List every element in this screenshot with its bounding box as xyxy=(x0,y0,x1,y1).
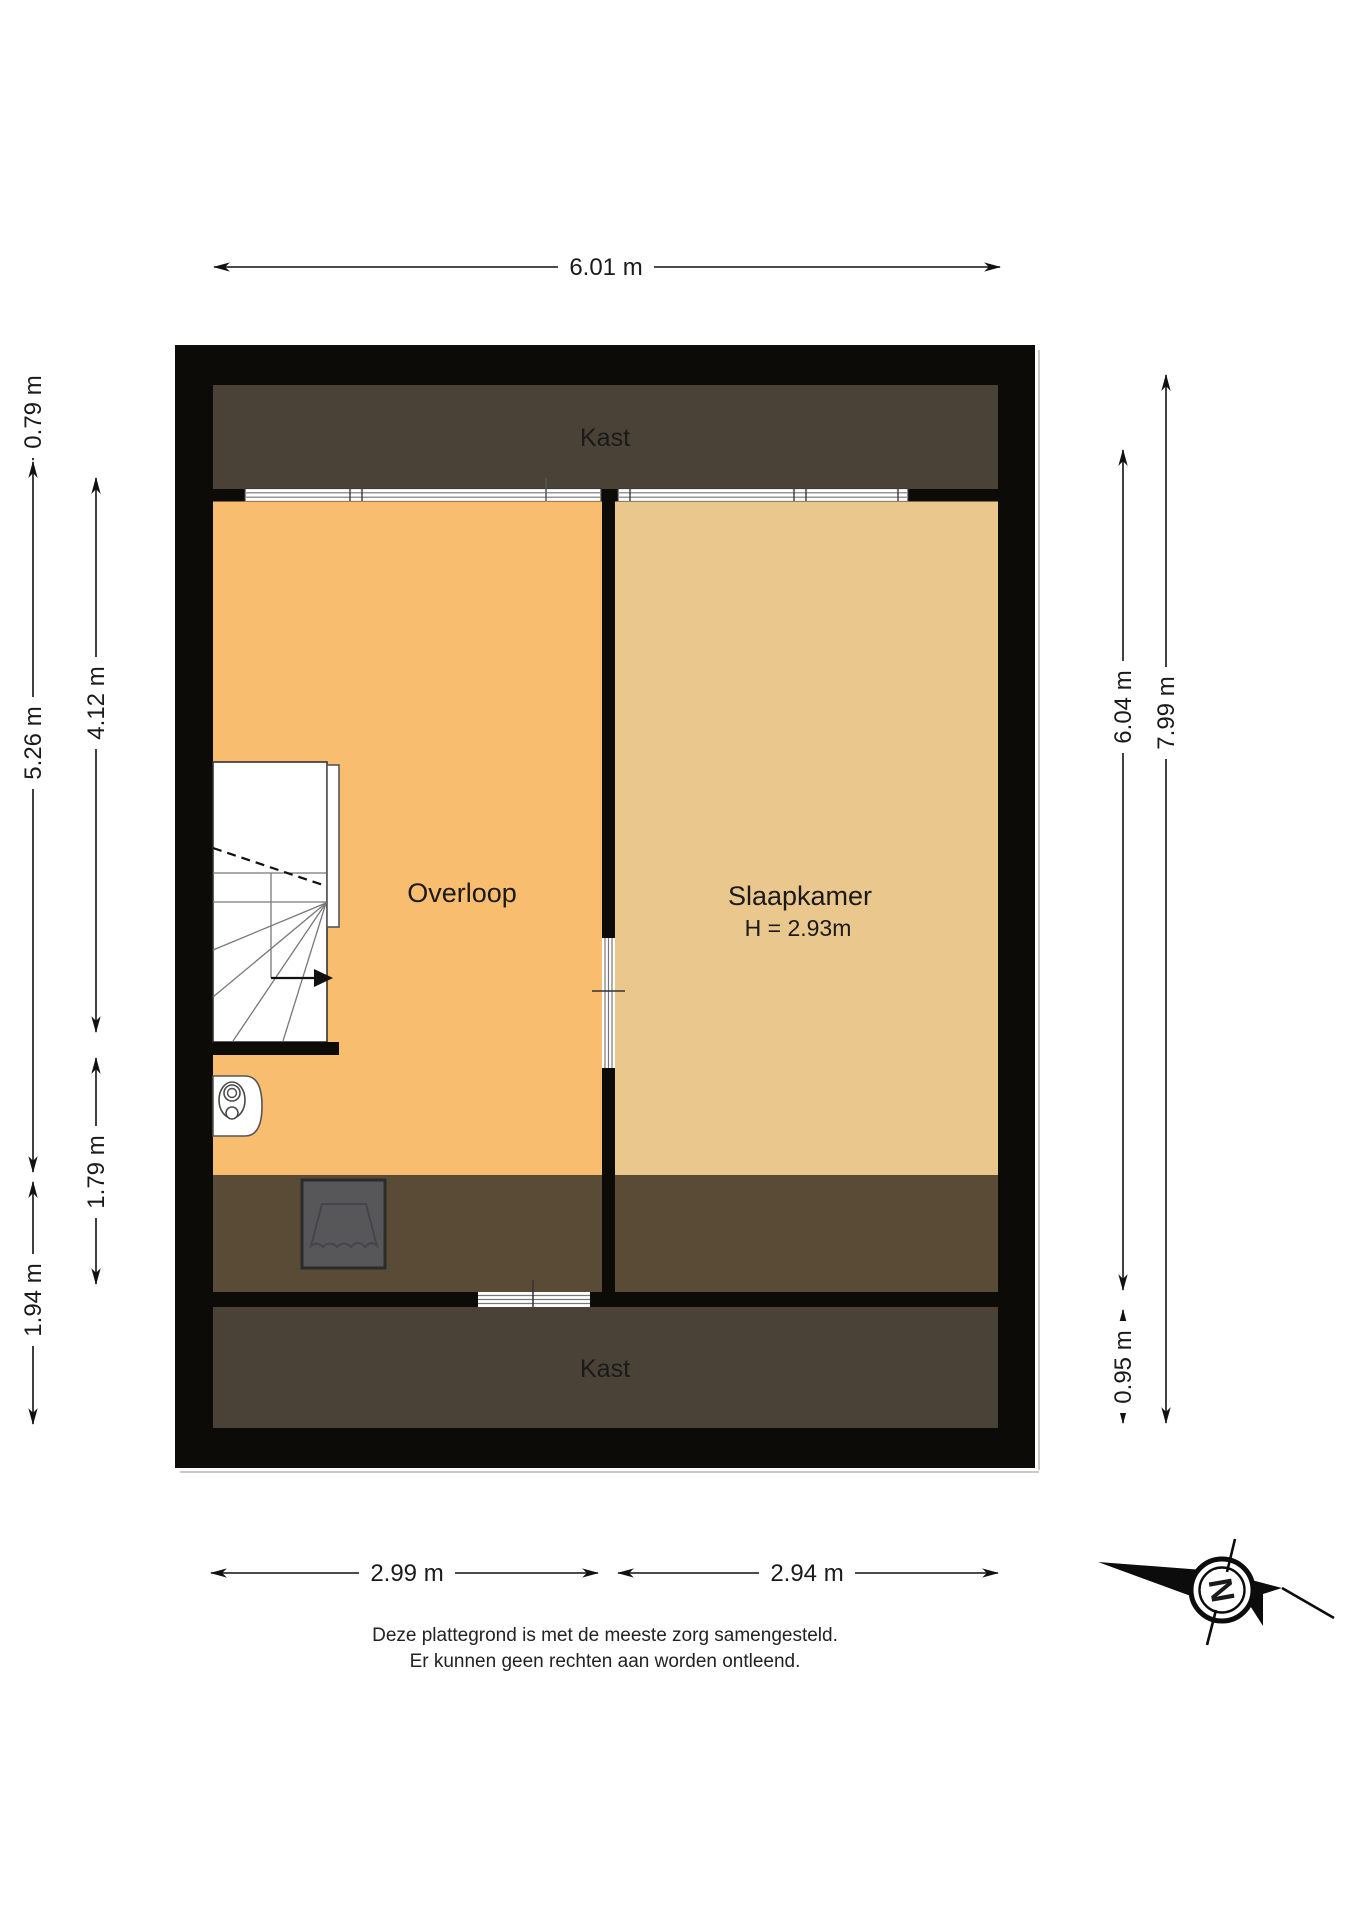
svg-text:2.94 m: 2.94 m xyxy=(770,1560,843,1587)
disclaimer: Deze plattegrond is met de meeste zorg s… xyxy=(372,1625,838,1672)
north-arrow: N xyxy=(1098,1539,1334,1645)
boiler-icon xyxy=(213,1076,262,1136)
room-slaapkamer xyxy=(615,502,998,1176)
svg-text:2.99 m: 2.99 m xyxy=(370,1560,443,1587)
svg-text:1.94 m: 1.94 m xyxy=(20,1263,47,1336)
floorplan-drawing: Kast Overloop Slaapkamer H = 2.93m Kast … xyxy=(0,0,1358,1920)
dim-right-inner-bottom: 0.95 m xyxy=(1107,1310,1139,1423)
svg-text:7.99 m: 7.99 m xyxy=(1153,676,1180,749)
attic-strip-left xyxy=(213,1175,602,1292)
window-left xyxy=(245,489,601,502)
dim-left-inner-bottom: 1.79 m xyxy=(80,1058,112,1284)
dim-bottom-left: 2.99 m xyxy=(211,1555,598,1591)
label-slaapkamer-height: H = 2.93m xyxy=(745,915,852,941)
svg-text:5.26 m: 5.26 m xyxy=(20,706,47,779)
svg-text:0.95 m: 0.95 m xyxy=(1110,1330,1137,1403)
floorplan-page: Kast Overloop Slaapkamer H = 2.93m Kast … xyxy=(0,0,1358,1920)
label-slaapkamer: Slaapkamer xyxy=(728,881,872,911)
dim-left-inner-top: 4.12 m xyxy=(80,478,112,1032)
label-kast-top: Kast xyxy=(580,424,630,452)
dim-top-width: 6.01 m xyxy=(214,249,1000,285)
svg-text:6.01 m: 6.01 m xyxy=(569,254,642,281)
stairs xyxy=(213,762,339,1055)
label-kast-bottom: Kast xyxy=(580,1355,630,1383)
stair-railing xyxy=(327,765,339,927)
svg-text:4.12 m: 4.12 m xyxy=(83,666,110,739)
dim-right-outer: 7.99 m xyxy=(1150,375,1182,1423)
label-overloop: Overloop xyxy=(407,878,517,908)
dim-right-inner-top: 6.04 m xyxy=(1107,450,1139,1290)
dim-left-outer-top: 0.79 m xyxy=(17,366,49,460)
stair-wall-stub xyxy=(213,1042,339,1055)
svg-text:1.79 m: 1.79 m xyxy=(83,1135,110,1208)
svg-text:6.04 m: 6.04 m xyxy=(1110,670,1137,743)
attic-strip-right xyxy=(615,1175,998,1292)
dim-bottom-right: 2.94 m xyxy=(618,1555,998,1591)
skylight-icon xyxy=(302,1180,385,1268)
dim-left-outer-mid: 5.26 m xyxy=(17,462,49,1172)
disclaimer-line1: Deze plattegrond is met de meeste zorg s… xyxy=(372,1625,838,1646)
window-right xyxy=(618,489,908,502)
disclaimer-line2: Er kunnen geen rechten aan worden ontlee… xyxy=(410,1651,801,1672)
dim-left-outer-bottom: 1.94 m xyxy=(17,1182,49,1424)
svg-text:0.79 m: 0.79 m xyxy=(20,375,47,448)
